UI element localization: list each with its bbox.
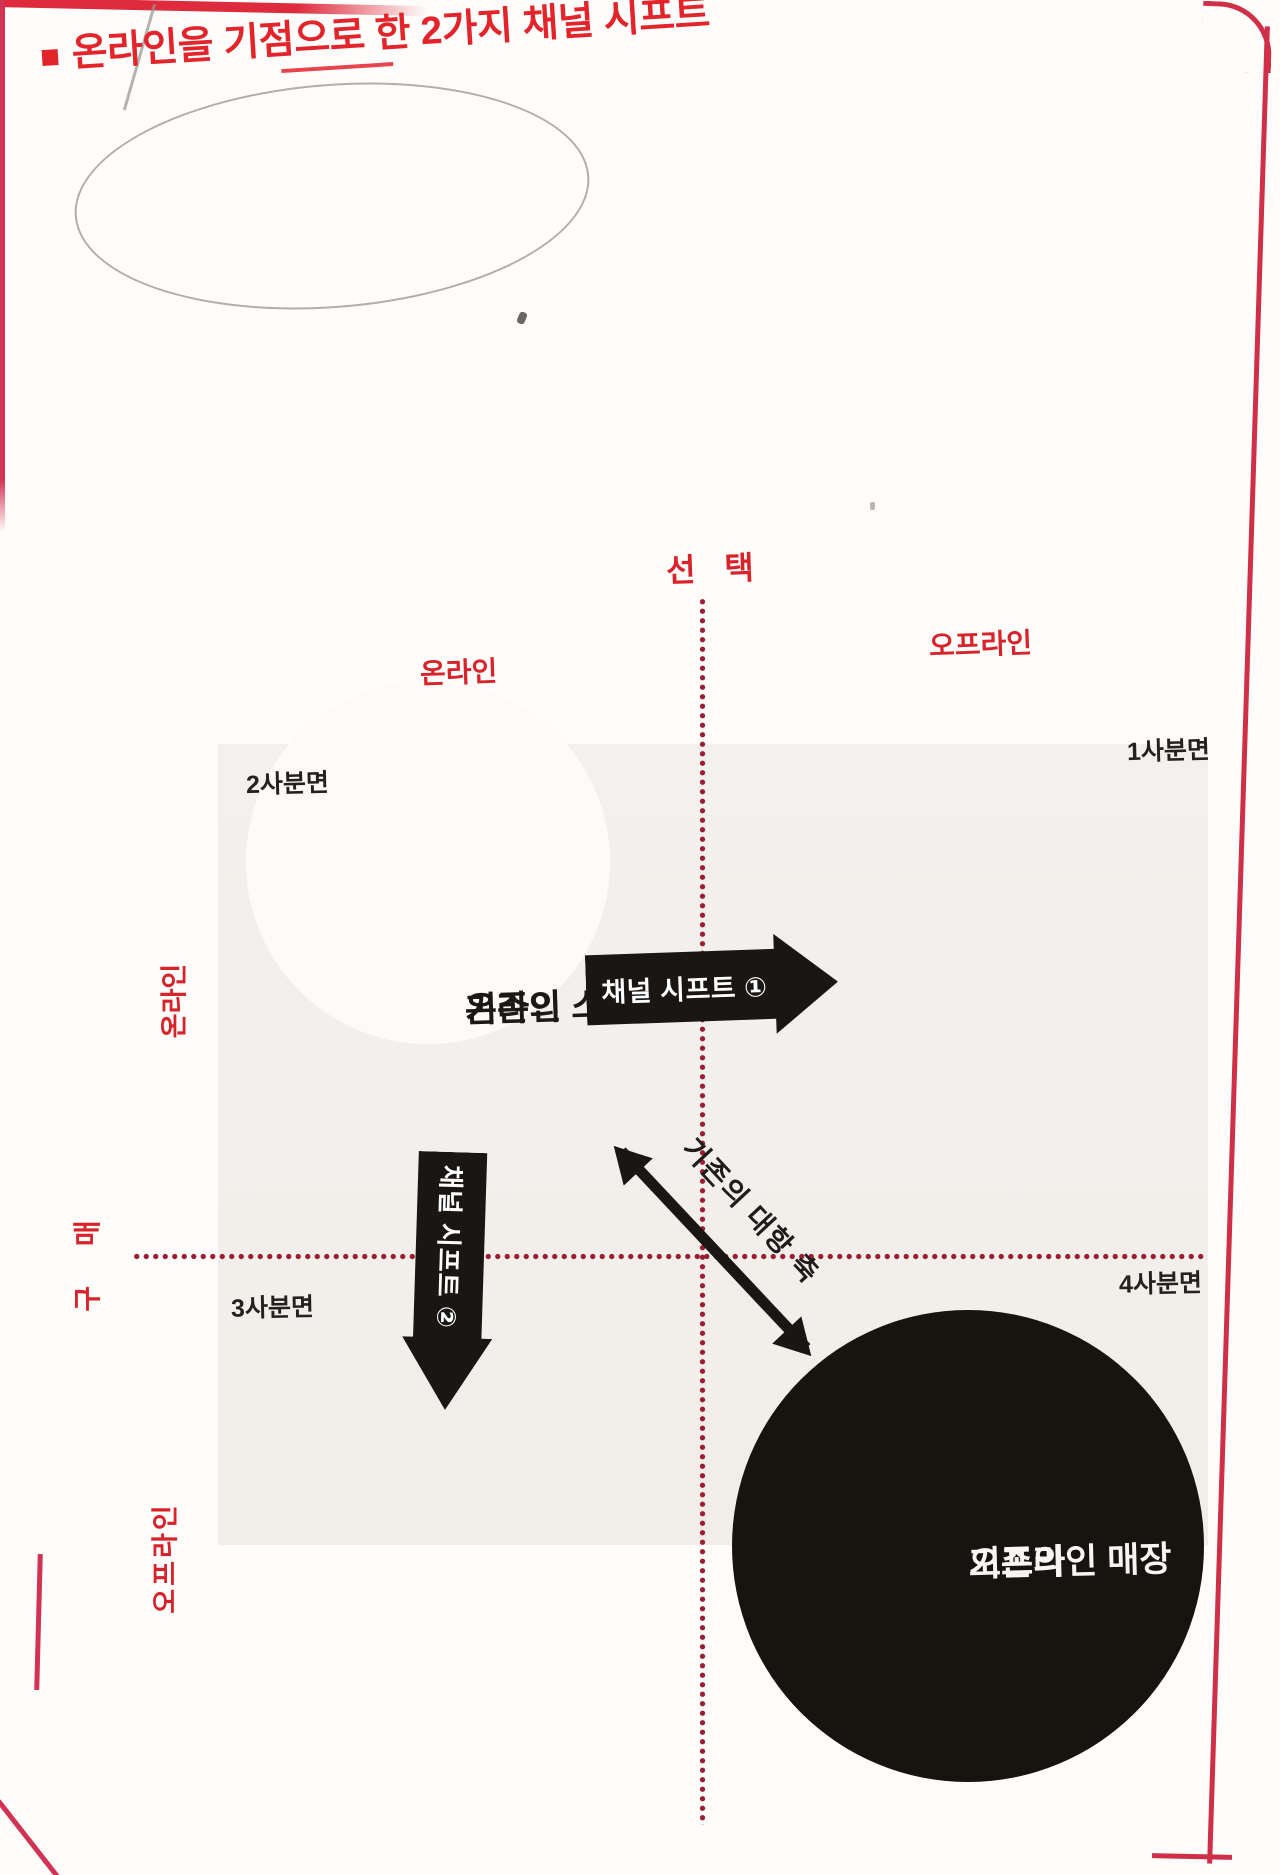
offline-store-circle: 기존의 오프라인 매장 [732, 1310, 1204, 1782]
figure-title-block: 온라인을 기점으로 한 2가지 채널 시프트 [40, 0, 743, 88]
left-lower-row-label-offline: 오프라인 [144, 1502, 183, 1613]
scan-speck [870, 502, 875, 510]
quadrant-1-label: 1사분면 [1127, 730, 1211, 768]
quadrant-4-label: 4사분면 [1119, 1263, 1203, 1300]
quadrant-2-label: 2사분면 [246, 763, 330, 801]
quadrant-3-label: 3사분면 [231, 1287, 315, 1324]
title-square-bullet-icon [42, 49, 59, 66]
top-axis-label-selection: 선 택 [665, 542, 764, 591]
page-bottom-left-border [34, 1554, 43, 1690]
top-right-column-label-offline: 오프라인 [928, 621, 1032, 665]
figure-title: 온라인을 기점으로 한 2가지 채널 시프트 [70, 0, 712, 86]
left-axis-label-purchase: 구 매 [66, 1204, 106, 1311]
offline-store-label-line2: 오프라인 매장 [968, 1534, 1172, 1591]
page-left-border [0, 0, 5, 532]
vertical-axis-dotted-line [698, 597, 707, 1825]
pencil-speck [516, 311, 528, 325]
horizontal-axis-dotted-line [132, 1252, 1204, 1261]
page-top-right-corner [1201, 1, 1273, 73]
page-right-border [1207, 26, 1270, 1863]
page-bottom-left-corner [0, 1799, 64, 1875]
pencil-oval-doodle [66, 64, 598, 328]
left-upper-row-label-online: 온라인 [153, 964, 192, 1039]
channel-shift-1-label: 채널 시프트 ① [585, 949, 784, 1026]
scanned-book-page: 온라인을 기점으로 한 2가지 채널 시프트 기존의 온라인 스토어 기존의 오… [0, 0, 1280, 1875]
top-left-column-label-online: 온라인 [419, 650, 498, 693]
page-bottom-right-border [1152, 1853, 1232, 1860]
channel-shift-2-label: 채널 시프트 ② [429, 1164, 471, 1329]
